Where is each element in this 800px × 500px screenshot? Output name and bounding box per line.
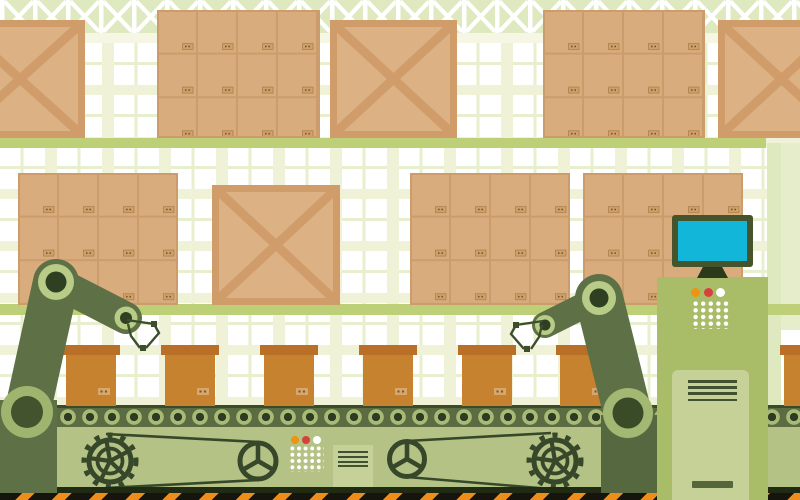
right-robot-arm <box>511 281 653 438</box>
monitor <box>672 215 753 267</box>
warehouse-illustration <box>0 0 800 500</box>
indicator-light <box>691 288 700 297</box>
indicator-light <box>704 288 713 297</box>
indicator-light <box>716 288 725 297</box>
monitor-screen <box>678 221 747 261</box>
console-door-handle <box>692 481 733 488</box>
left-robot-arm <box>1 264 159 438</box>
console-dot-grid <box>693 301 731 329</box>
